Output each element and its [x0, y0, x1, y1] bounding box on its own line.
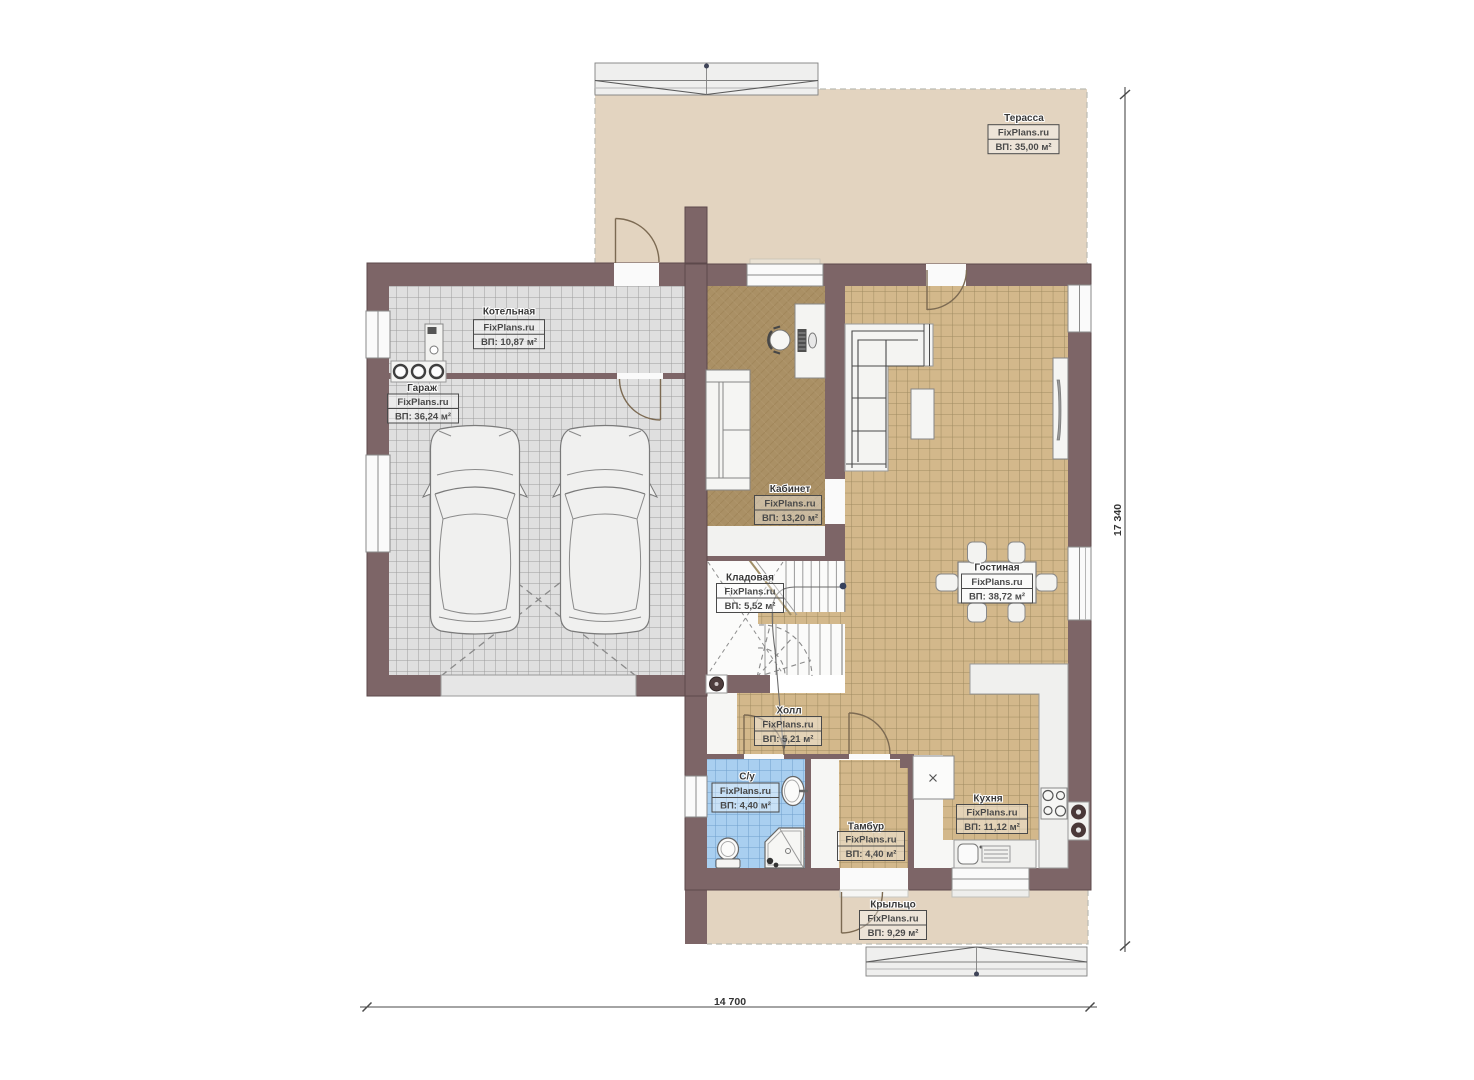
svg-text:Холл: Холл	[776, 706, 801, 717]
svg-text:ВП: 38,72 м²: ВП: 38,72 м²	[969, 592, 1025, 603]
svg-text:ВП: 5,52 м²: ВП: 5,52 м²	[725, 601, 776, 612]
svg-text:FixPlans.ru: FixPlans.ru	[720, 786, 771, 797]
svg-text:Крыльцо: Крыльцо	[870, 900, 916, 911]
svg-text:14 700: 14 700	[714, 996, 746, 1008]
svg-text:С/у: С/у	[739, 772, 755, 783]
svg-text:ВП: 9,29 м²: ВП: 9,29 м²	[868, 928, 919, 939]
svg-text:ВП: 11,12 м²: ВП: 11,12 м²	[964, 822, 1020, 833]
svg-text:Кухня: Кухня	[973, 794, 1002, 805]
svg-text:ВП: 36,24 м²: ВП: 36,24 м²	[395, 412, 451, 423]
svg-text:ВП: 13,20 м²: ВП: 13,20 м²	[762, 513, 818, 524]
svg-text:17 340: 17 340	[1112, 504, 1124, 536]
svg-text:ВП: 35,00 м²: ВП: 35,00 м²	[995, 142, 1051, 153]
svg-text:Кладовая: Кладовая	[726, 573, 774, 584]
svg-text:Гараж: Гараж	[407, 383, 438, 394]
svg-text:FixPlans.ru: FixPlans.ru	[971, 577, 1022, 588]
svg-text:FixPlans.ru: FixPlans.ru	[966, 808, 1017, 819]
svg-text:ВП: 4,40 м²: ВП: 4,40 м²	[720, 801, 771, 812]
svg-text:FixPlans.ru: FixPlans.ru	[397, 397, 448, 408]
svg-text:ВП: 10,87 м²: ВП: 10,87 м²	[481, 337, 537, 348]
svg-text:Котельная: Котельная	[483, 307, 536, 318]
svg-text:Терасса: Терасса	[1004, 113, 1044, 124]
svg-text:FixPlans.ru: FixPlans.ru	[762, 720, 813, 731]
svg-text:FixPlans.ru: FixPlans.ru	[724, 587, 775, 598]
svg-text:FixPlans.ru: FixPlans.ru	[483, 323, 534, 334]
svg-text:FixPlans.ru: FixPlans.ru	[764, 499, 815, 510]
svg-text:FixPlans.ru: FixPlans.ru	[998, 128, 1049, 139]
svg-text:FixPlans.ru: FixPlans.ru	[867, 914, 918, 925]
svg-text:Кабинет: Кабинет	[770, 483, 811, 495]
svg-text:ВП: 5,21 м²: ВП: 5,21 м²	[763, 734, 814, 745]
svg-text:Гостиная: Гостиная	[974, 563, 1019, 574]
svg-text:ВП: 4,40 м²: ВП: 4,40 м²	[846, 849, 897, 860]
svg-text:FixPlans.ru: FixPlans.ru	[845, 835, 896, 846]
svg-text:Тамбур: Тамбур	[848, 821, 884, 833]
